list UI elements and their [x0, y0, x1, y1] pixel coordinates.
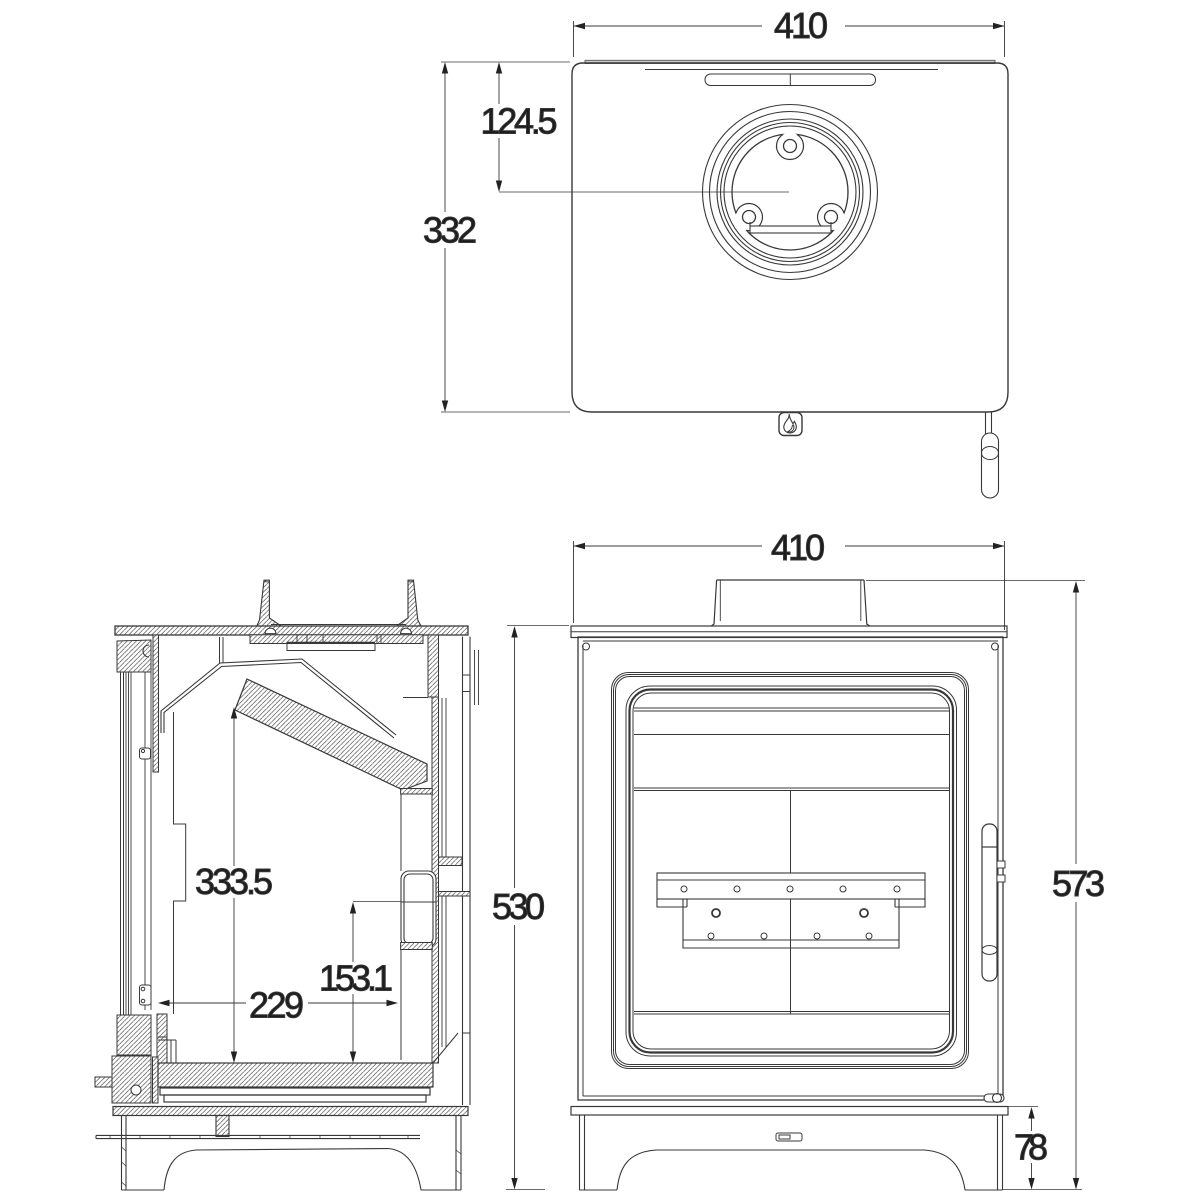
svg-text:229: 229: [249, 985, 304, 1026]
svg-text:410: 410: [771, 527, 825, 568]
svg-text:332: 332: [423, 210, 477, 251]
svg-text:530: 530: [492, 886, 545, 927]
svg-text:573: 573: [1052, 863, 1105, 904]
svg-text:410: 410: [774, 5, 828, 46]
svg-text:78: 78: [1014, 1127, 1048, 1168]
svg-text:333.5: 333.5: [195, 861, 273, 902]
svg-text:124.5: 124.5: [481, 101, 558, 142]
svg-text:153.1: 153.1: [319, 958, 393, 999]
